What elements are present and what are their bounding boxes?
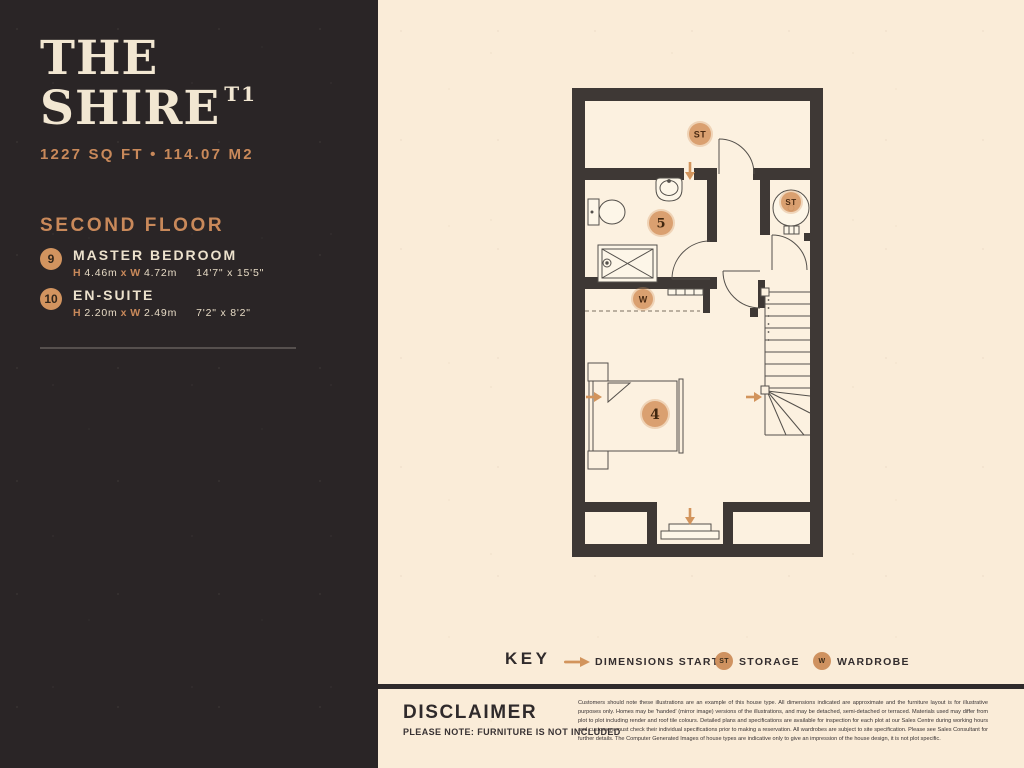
svg-text:ST: ST <box>694 130 707 140</box>
room-number-badge: 10 <box>40 288 62 310</box>
house-title-line2: SHIRE <box>40 81 220 136</box>
floorplan-page: { "colors": { "panel_dark": "#2a2526", "… <box>0 0 1024 768</box>
disclaimer-body: Customers should note these illustration… <box>578 699 988 744</box>
wardrobe-badge-icon: W <box>813 652 831 670</box>
dim-h-label: H <box>73 267 81 279</box>
key-label-dimensions-start: DIMENSIONS START <box>595 656 719 668</box>
room-list-item-master-bedroom: 9 MASTER BEDROOM H4.46mxW4.72m14'7" x 15… <box>40 247 360 279</box>
window-icon <box>661 524 719 539</box>
toilet-icon <box>588 199 625 225</box>
svg-text:4: 4 <box>650 407 660 423</box>
room-dimensions: H2.20mxW2.49m7'2" x 8'2" <box>73 307 360 319</box>
dim-x-label: x <box>121 267 128 279</box>
horizontal-divider-bar <box>378 684 1024 689</box>
house-title: THE SHIRET1 <box>40 34 257 142</box>
dimensions-start-arrow-icon <box>564 657 590 667</box>
disclaimer-heading: DISCLAIMER <box>403 702 537 724</box>
svg-text:ST: ST <box>785 198 796 207</box>
storage-marker-right: ST <box>779 190 803 214</box>
svg-text:5: 5 <box>656 217 665 232</box>
key-title: KEY <box>505 649 550 669</box>
dim-imperial: 7'2" x 8'2" <box>196 307 251 319</box>
area-stat: 1227 SQ FT • 114.07 M2 <box>40 146 254 163</box>
basin-icon <box>656 178 682 201</box>
key-label-storage: STORAGE <box>739 656 800 668</box>
radiator-icon <box>668 289 703 295</box>
house-type-superscript: T1 <box>224 82 257 106</box>
left-panel: THE SHIRET1 1227 SQ FT • 114.07 M2 SECON… <box>0 0 378 768</box>
dim-h-value: 4.46m <box>84 267 117 279</box>
storage-badge-icon: ST <box>715 652 733 670</box>
dim-h-label: H <box>73 307 81 319</box>
room-number-badge: 9 <box>40 248 62 270</box>
house-title-line1: THE <box>40 31 158 86</box>
dim-w-label: W <box>130 307 141 319</box>
dim-h-value: 2.20m <box>84 307 117 319</box>
floorplan-drawing: ST ST W 5 4 <box>558 78 838 570</box>
shower-icon <box>598 245 657 282</box>
floor-heading: SECOND FLOOR <box>40 215 224 237</box>
wardrobe-marker: W <box>631 287 655 311</box>
dim-w-value: 4.72m <box>144 267 177 279</box>
room-dimensions: H4.46mxW4.72m14'7" x 15'5" <box>73 267 360 279</box>
room-list-item-en-suite: 10 EN-SUITE H2.20mxW2.49m7'2" x 8'2" <box>40 287 360 319</box>
dim-w-value: 2.49m <box>144 307 177 319</box>
key-label-wardrobe: WARDROBE <box>837 656 910 668</box>
svg-text:W: W <box>639 295 648 305</box>
ensuite-number-marker: 5 <box>647 209 675 237</box>
bedroom-number-marker: 4 <box>640 399 670 429</box>
storage-marker-top: ST <box>687 121 713 147</box>
dim-x-label: x <box>121 307 128 319</box>
right-panel: ST ST W 5 4 KEY <box>378 0 1024 768</box>
room-name: MASTER BEDROOM <box>73 247 360 263</box>
divider-line <box>40 347 296 349</box>
dim-imperial: 14'7" x 15'5" <box>196 267 264 279</box>
room-name: EN-SUITE <box>73 287 360 303</box>
floor-area <box>578 94 816 551</box>
dim-w-label: W <box>130 267 141 279</box>
